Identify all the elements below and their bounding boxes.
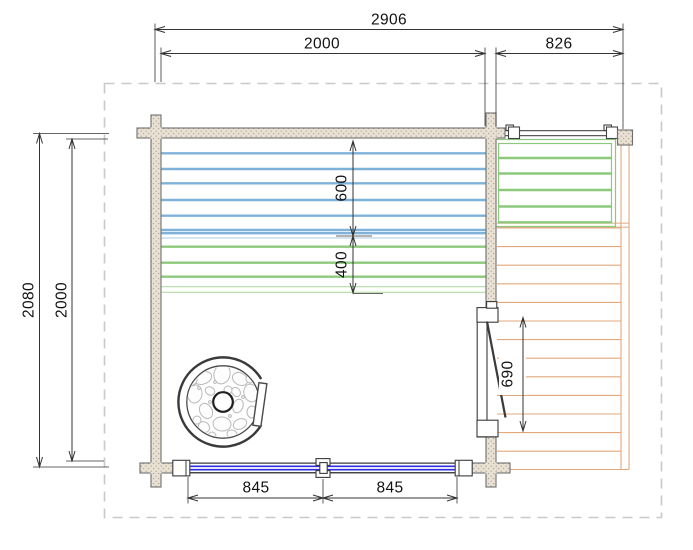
heater-chimney — [213, 392, 233, 412]
dimensions: 2906 2000 826 2080 2000 — [21, 12, 624, 504]
terrace-deck-boards — [497, 145, 629, 470]
right-wall-lower — [486, 437, 496, 487]
sauna-heater — [178, 357, 266, 446]
terrace-bench — [495, 140, 616, 227]
terrace-railing — [500, 125, 619, 139]
dim-room-depth: 2000 — [54, 139, 109, 461]
door-frame-top — [477, 308, 498, 323]
dim-terrace-width: 826 — [496, 36, 623, 127]
dim-label: 400 — [334, 251, 351, 278]
left-wall — [151, 115, 161, 487]
dim-label: 845 — [376, 480, 403, 497]
door-frame-bottom — [477, 420, 498, 437]
terrace-corner-post — [618, 130, 633, 145]
dim-label: 826 — [545, 36, 572, 53]
dim-label: 690 — [500, 360, 517, 387]
floor-plan-canvas: 2906 2000 826 2080 2000 — [0, 0, 693, 550]
dim-lower-bench: 400 — [334, 236, 384, 294]
dim-label: 600 — [334, 174, 351, 201]
window-frame-left — [173, 460, 190, 476]
floor-plan-drawing: 2906 2000 826 2080 2000 — [0, 0, 693, 550]
dim-overall-width: 2906 — [155, 12, 623, 130]
window — [173, 459, 472, 478]
dim-label: 2000 — [54, 282, 71, 318]
roof-overhang-outline — [105, 84, 662, 518]
dim-window-left: 845 — [188, 477, 457, 504]
lower-bench-boards — [162, 247, 486, 293]
dim-upper-bench: 600 — [334, 141, 373, 236]
dim-label: 2000 — [304, 36, 340, 53]
upper-bench-boards — [162, 153, 486, 238]
dim-label: 845 — [242, 480, 269, 497]
dim-window-right: 845 — [323, 480, 457, 499]
right-wall-upper — [486, 113, 496, 308]
railing-post — [509, 127, 520, 139]
dim-room-width: 2000 — [161, 36, 485, 127]
door-leaf — [477, 308, 487, 437]
railing-post — [607, 127, 618, 139]
top-wall — [137, 128, 505, 138]
dim-label: 2080 — [21, 282, 38, 318]
dim-label: 2906 — [371, 12, 407, 29]
window-frame-right — [455, 460, 472, 476]
